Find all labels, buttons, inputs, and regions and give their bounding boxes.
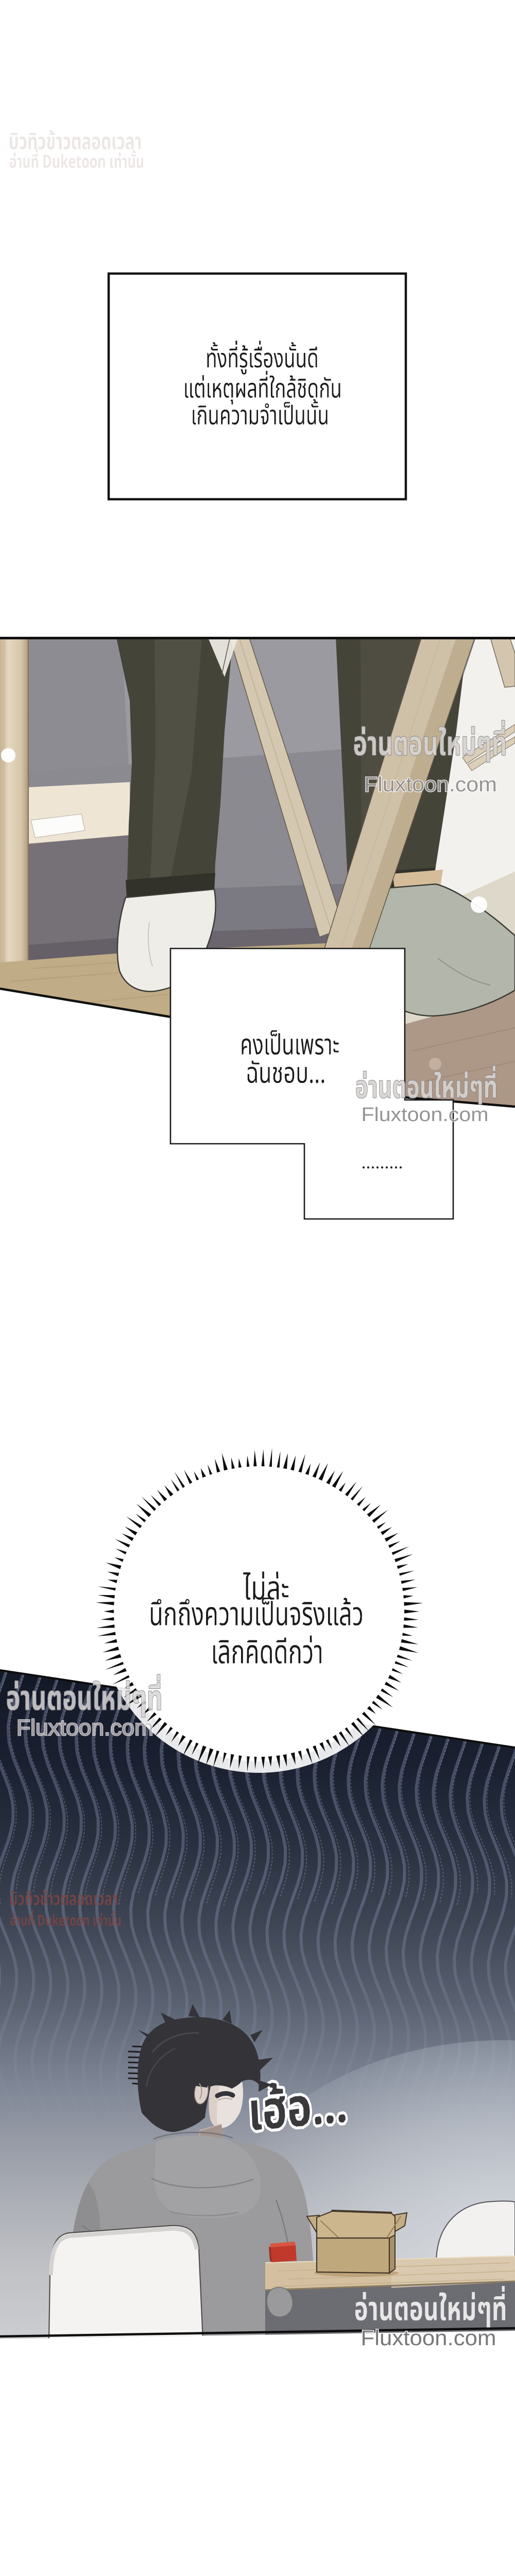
svg-text:Fluxtoon.com: Fluxtoon.com xyxy=(16,1715,153,1740)
svg-text:Fluxtoon.com: Fluxtoon.com xyxy=(364,773,497,796)
svg-text:Fluxtoon.com: Fluxtoon.com xyxy=(361,2326,496,2350)
svg-text:Fluxtoon.com: Fluxtoon.com xyxy=(362,1104,489,1126)
